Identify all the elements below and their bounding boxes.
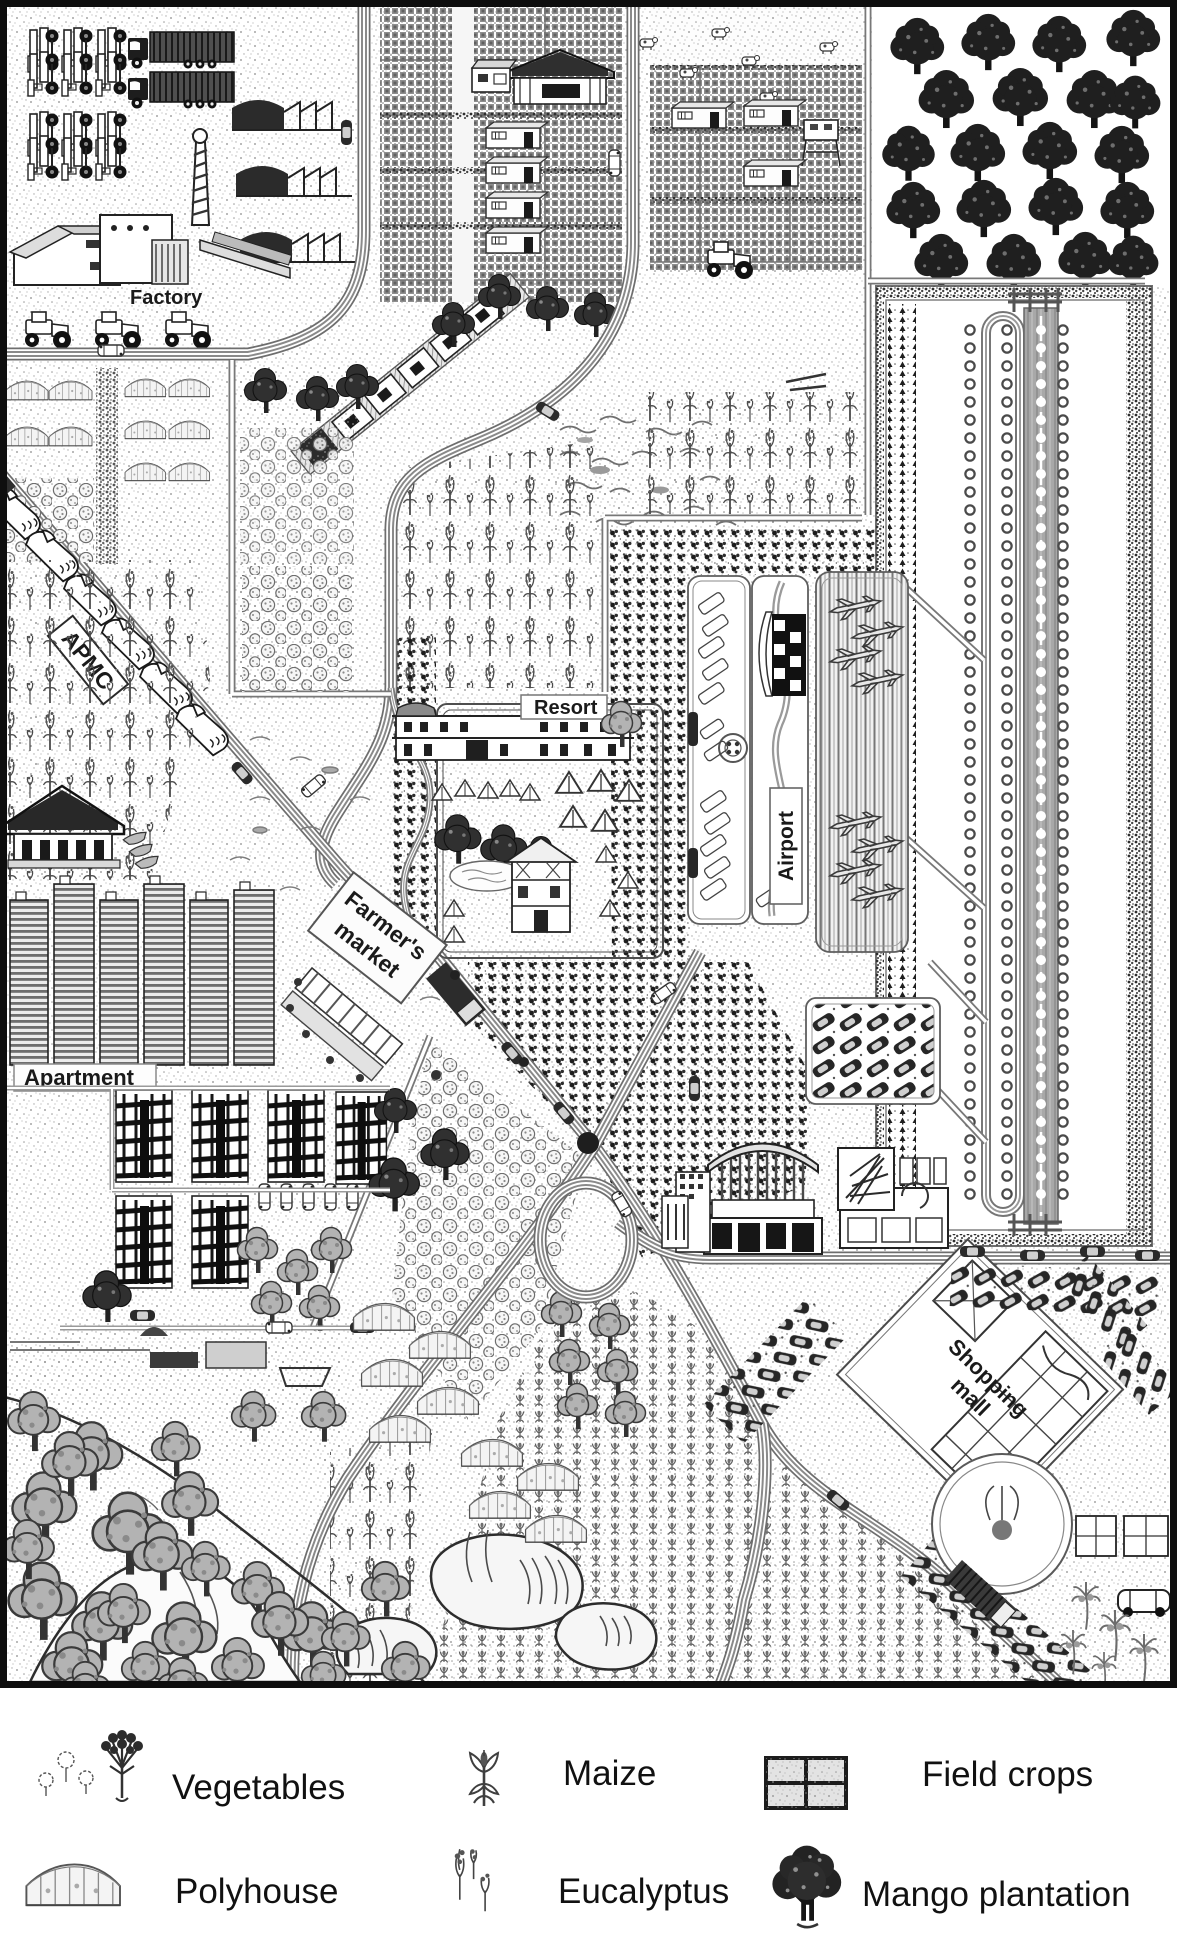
svg-text:Mango plantation: Mango plantation (862, 1875, 1131, 1914)
svg-text:Vegetables: Vegetables (172, 1768, 345, 1807)
svg-text:Eucalyptus: Eucalyptus (558, 1872, 729, 1911)
svg-text:Airport: Airport (775, 811, 798, 881)
svg-text:Factory: Factory (130, 287, 203, 309)
svg-text:Maize: Maize (563, 1754, 656, 1793)
svg-text:Field crops: Field crops (922, 1755, 1093, 1794)
svg-text:Polyhouse: Polyhouse (175, 1872, 338, 1911)
svg-text:Resort: Resort (534, 697, 598, 719)
